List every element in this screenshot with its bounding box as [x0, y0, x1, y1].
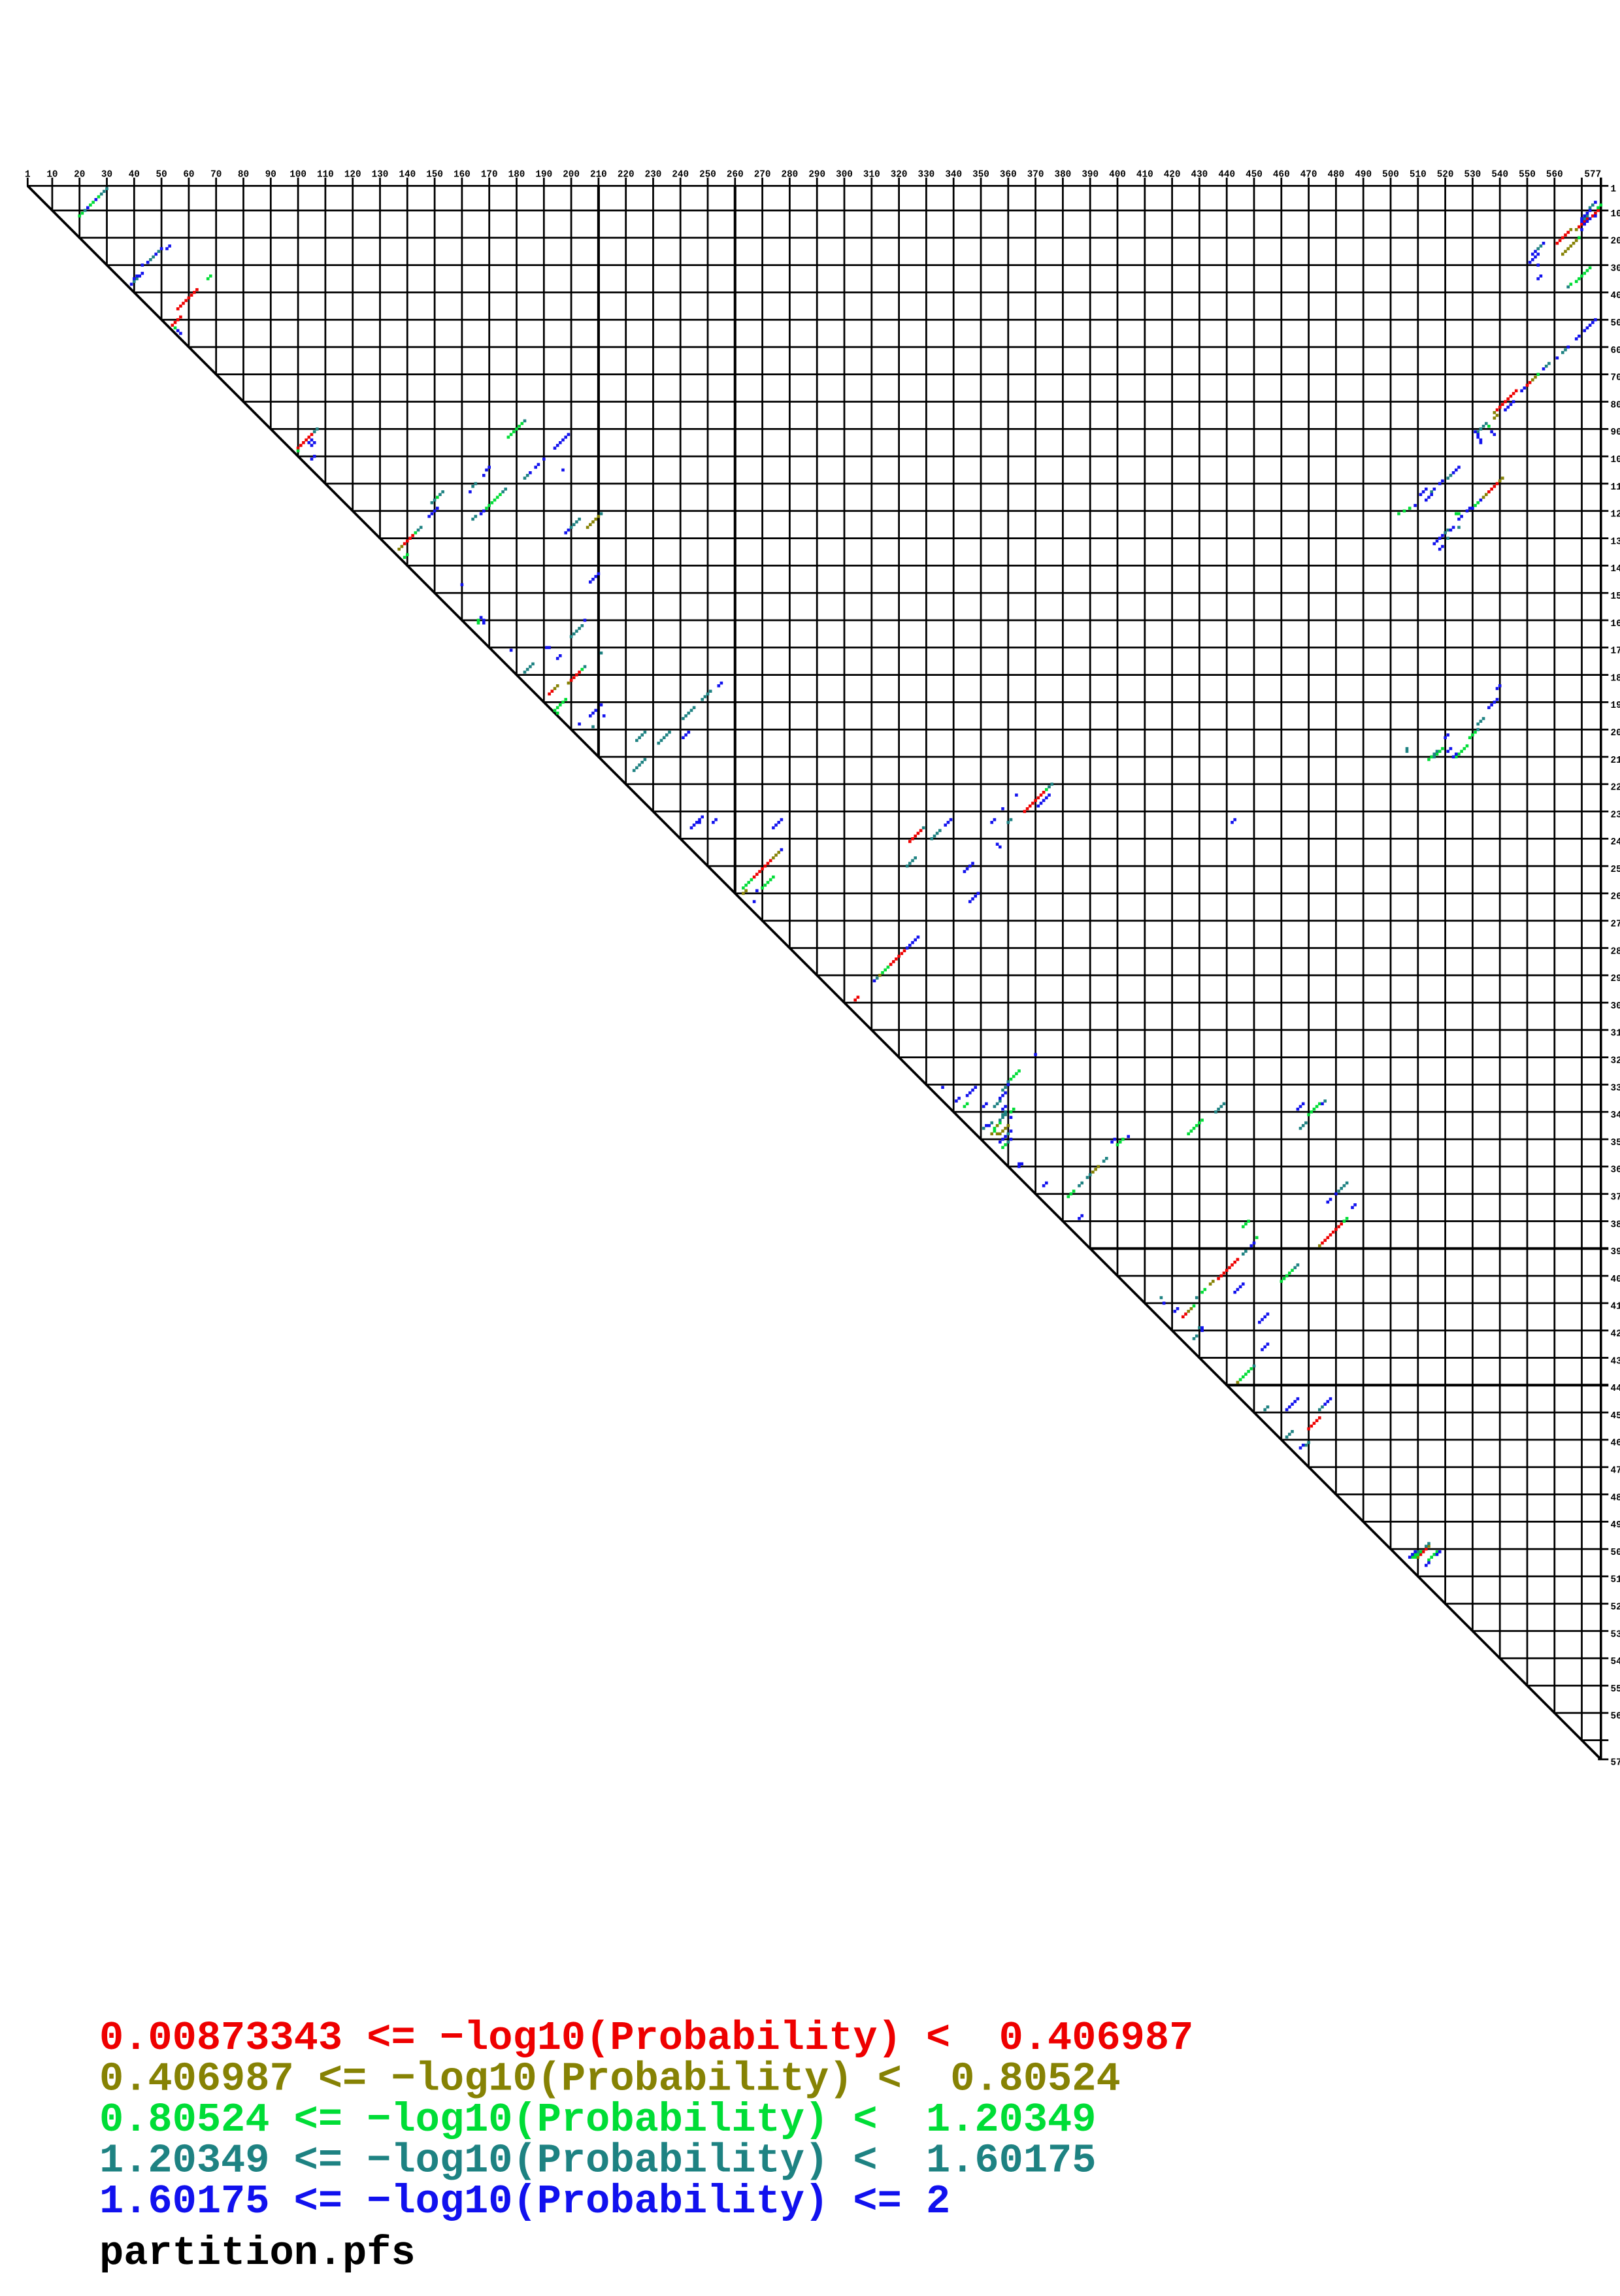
svg-text:260: 260 [1611, 892, 1620, 903]
svg-text:260: 260 [727, 170, 744, 180]
svg-text:310: 310 [863, 170, 880, 180]
svg-text:490: 490 [1355, 170, 1372, 180]
svg-text:160: 160 [1611, 619, 1620, 629]
svg-text:200: 200 [563, 170, 580, 180]
svg-text:550: 550 [1611, 1684, 1620, 1695]
svg-text:380: 380 [1611, 1220, 1620, 1230]
svg-text:320: 320 [891, 170, 908, 180]
svg-text:240: 240 [1611, 837, 1620, 848]
svg-text:577: 577 [1611, 1758, 1620, 1769]
svg-text:520: 520 [1437, 170, 1454, 180]
svg-text:280: 280 [1611, 946, 1620, 957]
svg-text:510: 510 [1611, 1575, 1620, 1586]
svg-text:100: 100 [289, 170, 306, 180]
svg-text:300: 300 [836, 170, 853, 180]
svg-text:400: 400 [1109, 170, 1126, 180]
svg-text:50: 50 [156, 170, 167, 180]
svg-text:230: 230 [645, 170, 662, 180]
svg-text:460: 460 [1273, 170, 1290, 180]
svg-text:280: 280 [782, 170, 799, 180]
svg-text:480: 480 [1611, 1493, 1620, 1503]
svg-text:1.20349 <= −log10(Probability): 1.20349 <= −log10(Probability) < 1.60175 [99, 2138, 1096, 2184]
svg-text:440: 440 [1611, 1384, 1620, 1394]
svg-text:330: 330 [1611, 1083, 1620, 1093]
svg-text:577: 577 [1584, 170, 1601, 180]
svg-text:560: 560 [1546, 170, 1563, 180]
svg-text:partition.pfs: partition.pfs [99, 2230, 416, 2276]
svg-text:250: 250 [699, 170, 716, 180]
svg-text:450: 450 [1611, 1411, 1620, 1422]
svg-text:40: 40 [1611, 291, 1620, 301]
svg-text:30: 30 [1611, 263, 1620, 274]
svg-text:370: 370 [1611, 1193, 1620, 1203]
svg-text:120: 120 [1611, 510, 1620, 520]
svg-text:400: 400 [1611, 1274, 1620, 1285]
svg-text:470: 470 [1611, 1466, 1620, 1476]
svg-text:190: 190 [1611, 701, 1620, 711]
svg-text:330: 330 [918, 170, 935, 180]
svg-text:110: 110 [317, 170, 334, 180]
svg-text:550: 550 [1519, 170, 1536, 180]
svg-text:150: 150 [1611, 591, 1620, 602]
svg-text:80: 80 [1611, 400, 1620, 410]
svg-text:370: 370 [1027, 170, 1044, 180]
svg-text:170: 170 [481, 170, 498, 180]
svg-text:440: 440 [1218, 170, 1235, 180]
svg-text:210: 210 [1611, 756, 1620, 766]
svg-text:70: 70 [1611, 373, 1620, 384]
svg-text:130: 130 [1611, 537, 1620, 547]
svg-text:170: 170 [1611, 646, 1620, 657]
svg-text:220: 220 [1611, 783, 1620, 793]
svg-text:500: 500 [1382, 170, 1399, 180]
svg-text:140: 140 [399, 170, 416, 180]
svg-text:420: 420 [1164, 170, 1181, 180]
svg-text:0.00873343 <= −log10(Probabili: 0.00873343 <= −log10(Probability) < 0.40… [99, 2015, 1193, 2061]
svg-text:180: 180 [508, 170, 525, 180]
svg-text:390: 390 [1082, 170, 1099, 180]
svg-text:300: 300 [1611, 1001, 1620, 1012]
svg-text:450: 450 [1246, 170, 1263, 180]
svg-text:100: 100 [1611, 455, 1620, 465]
svg-text:540: 540 [1611, 1657, 1620, 1667]
svg-text:360: 360 [1000, 170, 1017, 180]
svg-text:230: 230 [1611, 810, 1620, 820]
svg-text:70: 70 [210, 170, 222, 180]
svg-text:140: 140 [1611, 564, 1620, 574]
svg-text:180: 180 [1611, 673, 1620, 684]
svg-text:410: 410 [1136, 170, 1153, 180]
svg-text:10: 10 [46, 170, 58, 180]
svg-text:1: 1 [1611, 184, 1617, 195]
svg-text:90: 90 [1611, 427, 1620, 438]
svg-text:540: 540 [1491, 170, 1508, 180]
svg-text:480: 480 [1328, 170, 1345, 180]
svg-text:510: 510 [1410, 170, 1427, 180]
svg-text:490: 490 [1611, 1520, 1620, 1531]
svg-text:340: 340 [945, 170, 962, 180]
svg-text:310: 310 [1611, 1029, 1620, 1039]
svg-text:270: 270 [1611, 920, 1620, 930]
svg-text:420: 420 [1611, 1329, 1620, 1340]
svg-text:250: 250 [1611, 865, 1620, 875]
svg-text:160: 160 [454, 170, 471, 180]
svg-text:460: 460 [1611, 1439, 1620, 1449]
svg-text:340: 340 [1611, 1110, 1620, 1121]
svg-text:500: 500 [1611, 1548, 1620, 1558]
svg-text:210: 210 [590, 170, 607, 180]
svg-text:130: 130 [372, 170, 389, 180]
svg-text:60: 60 [1611, 346, 1620, 356]
svg-text:0.80524 <= −log10(Probability): 0.80524 <= −log10(Probability) < 1.20349 [99, 2097, 1096, 2143]
svg-text:530: 530 [1611, 1629, 1620, 1640]
svg-text:90: 90 [265, 170, 276, 180]
svg-text:410: 410 [1611, 1302, 1620, 1312]
svg-text:110: 110 [1611, 482, 1620, 493]
svg-text:520: 520 [1611, 1603, 1620, 1613]
svg-text:190: 190 [535, 170, 552, 180]
svg-text:150: 150 [426, 170, 443, 180]
svg-text:290: 290 [808, 170, 825, 180]
svg-text:270: 270 [754, 170, 771, 180]
svg-text:220: 220 [618, 170, 635, 180]
svg-text:60: 60 [183, 170, 194, 180]
svg-text:40: 40 [129, 170, 140, 180]
svg-text:380: 380 [1055, 170, 1072, 180]
svg-text:0.406987 <= −log10(Probability: 0.406987 <= −log10(Probability) < 0.8052… [99, 2056, 1121, 2103]
svg-text:350: 350 [972, 170, 989, 180]
svg-text:1: 1 [25, 170, 31, 180]
svg-text:10: 10 [1611, 209, 1620, 220]
svg-text:30: 30 [101, 170, 112, 180]
svg-text:430: 430 [1191, 170, 1208, 180]
svg-text:360: 360 [1611, 1165, 1620, 1176]
svg-text:350: 350 [1611, 1138, 1620, 1148]
svg-text:50: 50 [1611, 318, 1620, 329]
svg-text:20: 20 [1611, 237, 1620, 247]
svg-text:320: 320 [1611, 1056, 1620, 1067]
svg-text:530: 530 [1464, 170, 1481, 180]
svg-text:390: 390 [1611, 1247, 1620, 1257]
svg-text:1.60175 <= −log10(Probability): 1.60175 <= −log10(Probability) <= 2 [99, 2178, 950, 2225]
svg-text:120: 120 [344, 170, 361, 180]
svg-text:20: 20 [74, 170, 85, 180]
svg-text:430: 430 [1611, 1356, 1620, 1367]
svg-text:200: 200 [1611, 728, 1620, 739]
svg-text:80: 80 [238, 170, 249, 180]
svg-text:470: 470 [1300, 170, 1317, 180]
svg-text:560: 560 [1611, 1712, 1620, 1722]
svg-text:290: 290 [1611, 974, 1620, 984]
svg-text:240: 240 [672, 170, 689, 180]
